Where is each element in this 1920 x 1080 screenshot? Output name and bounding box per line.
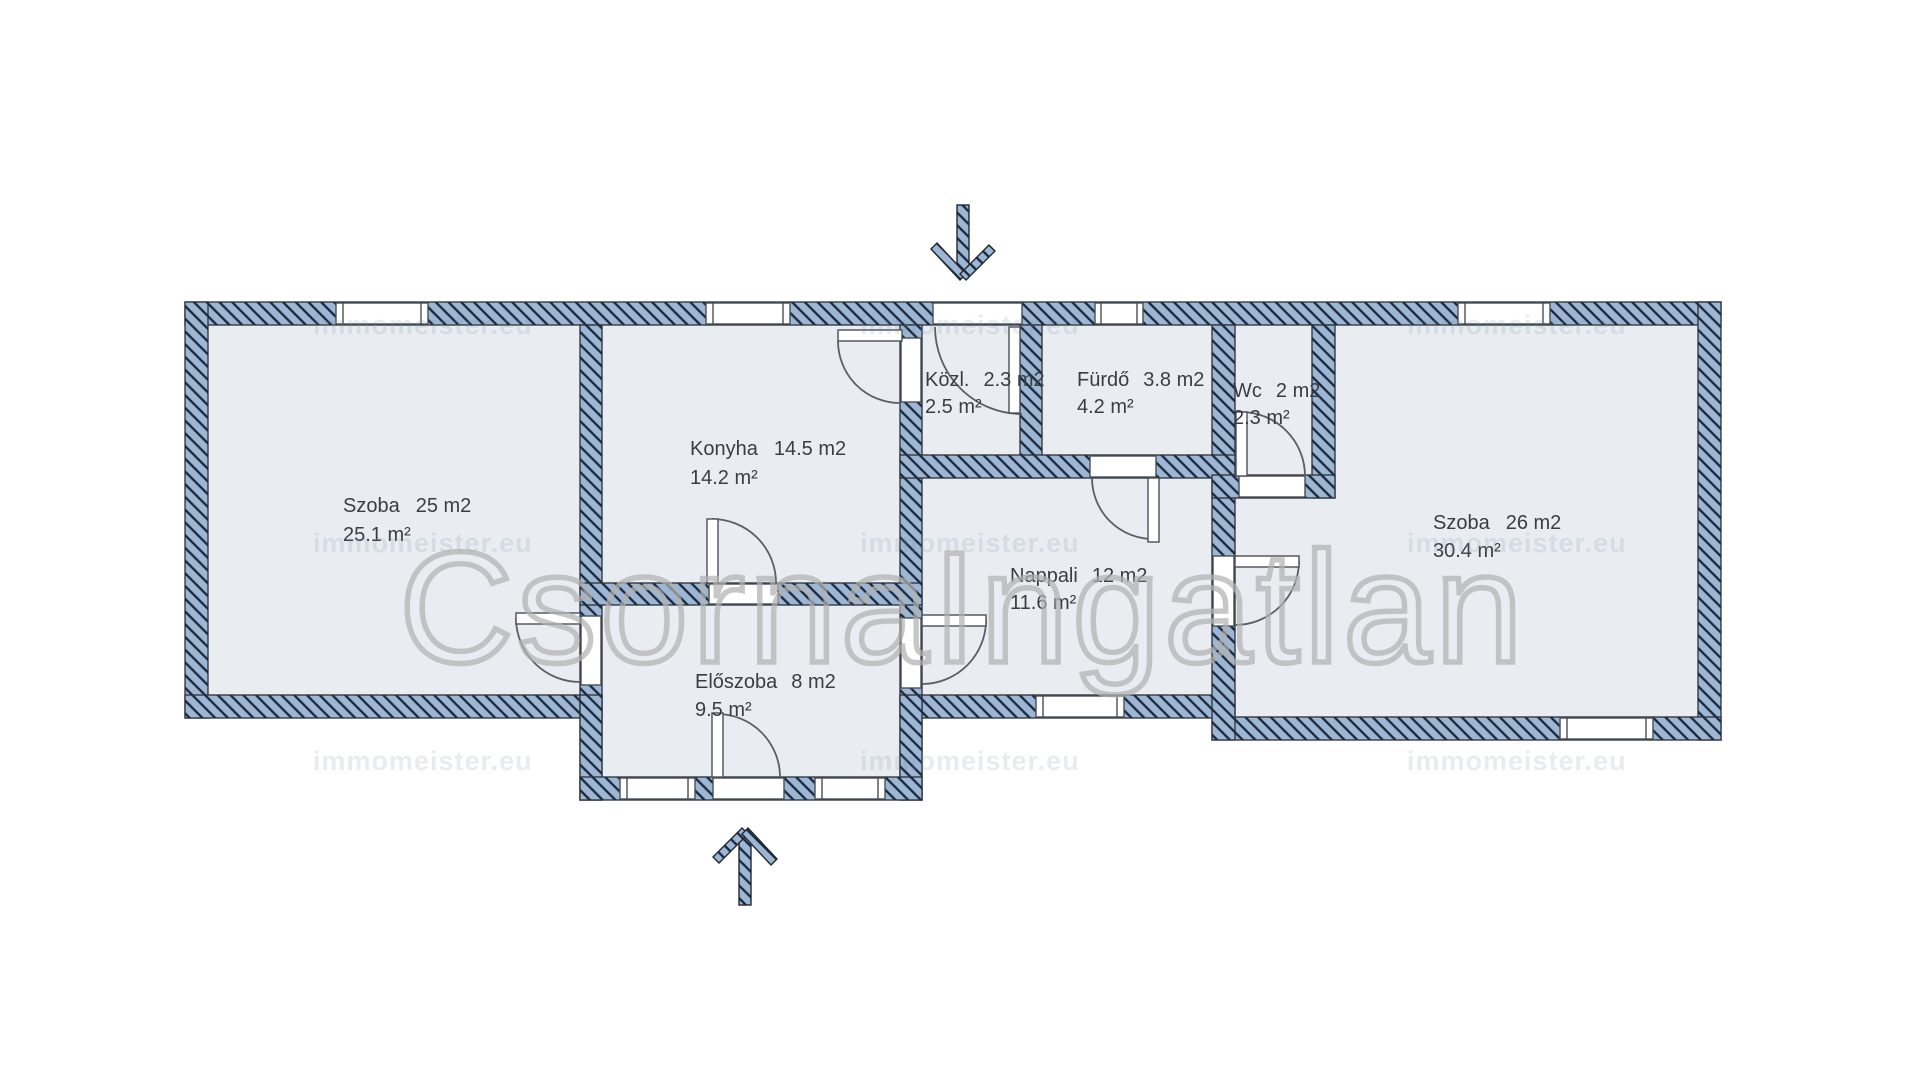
svg-text:Közl.2.3 m2: Közl.2.3 m2 [925,369,1045,391]
window-furdo-top [1095,303,1143,324]
entrance-arrow-down-icon [931,205,995,280]
wall-wc-right [1312,325,1335,498]
wall-left [185,302,208,718]
watermark-tile: immomeister.eu [313,746,533,776]
watermark-tile: immomeister.eu [313,310,533,340]
window-eloszoba-bottom-right [815,778,885,799]
window-szoba26-bottom [1560,718,1653,739]
wall-nappali-top [900,455,1235,478]
window-eloszoba-bottom-left [620,778,695,799]
watermark-tile: immomeister.eu [1407,310,1627,340]
entrance-arrow-up-icon [713,828,777,905]
window-nappali-bottom [1036,696,1124,717]
svg-text:14.2 m²: 14.2 m² [690,467,758,489]
svg-text:9.5 m²: 9.5 m² [695,699,752,721]
watermark-tile: immomeister.eu [860,746,1080,776]
watermark-tile: immomeister.eu [1407,746,1627,776]
window-konyha-top [706,303,790,324]
wall-bottom-left [185,695,602,718]
watermark-tile: immomeister.eu [860,310,1080,340]
wall-right [1698,302,1721,740]
svg-text:2.5 m²: 2.5 m² [925,396,982,418]
svg-text:2.3 m²: 2.3 m² [1233,407,1290,429]
svg-text:4.2 m²: 4.2 m² [1077,396,1134,418]
svg-text:Wc2 m2: Wc2 m2 [1233,380,1320,402]
watermark-brand: CsornaIngatlan [399,520,1527,696]
floor-plan: Szoba25 m2 25.1 m² Konyha14.5 m2 14.2 m²… [0,0,1920,1080]
